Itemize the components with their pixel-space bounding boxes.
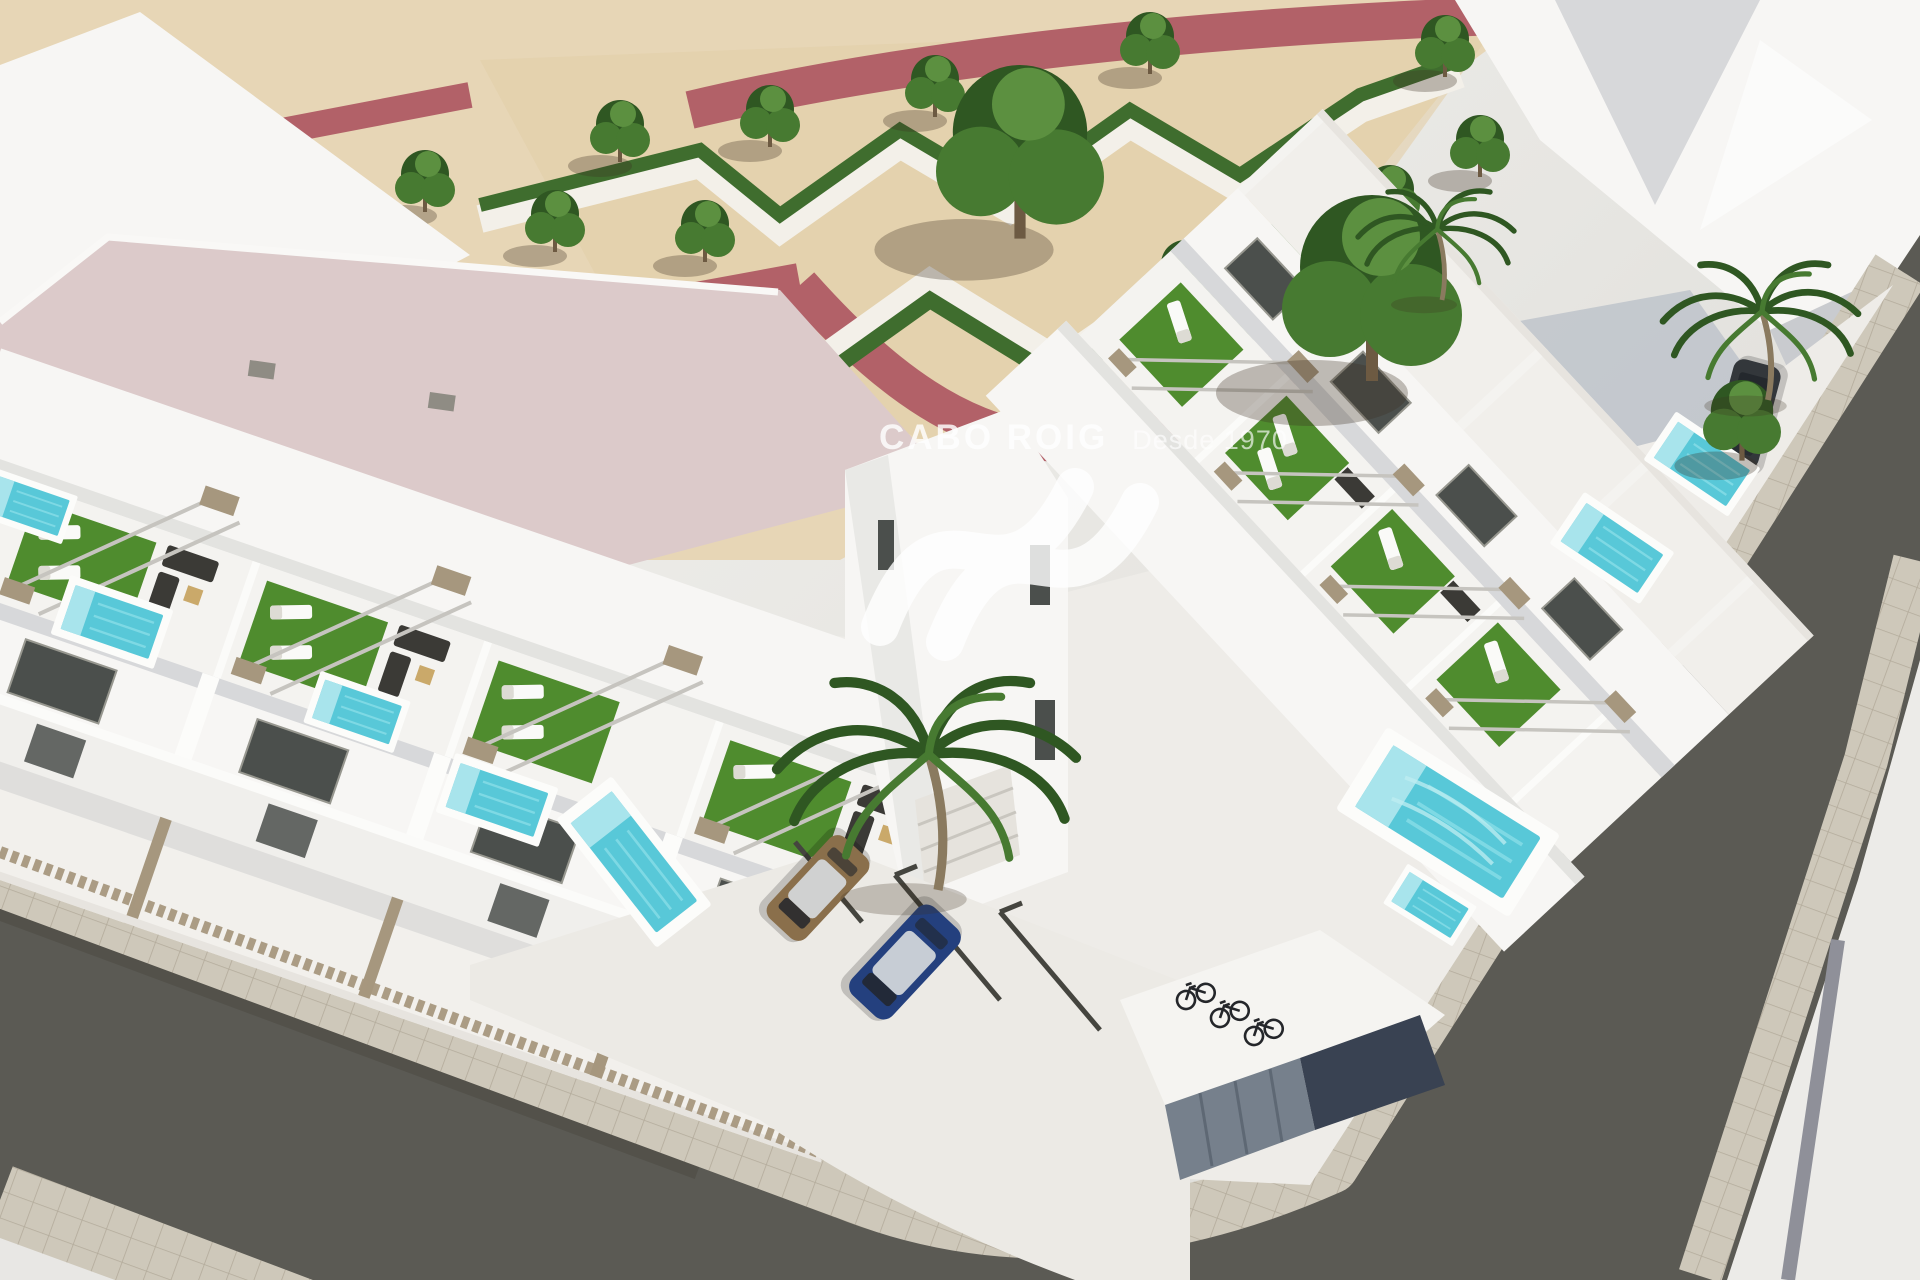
sun-lounger bbox=[270, 605, 312, 620]
scene-canvas bbox=[0, 0, 1920, 1280]
render-scene: CABO ROIG Desde 1970 bbox=[0, 0, 1920, 1280]
sun-lounger bbox=[502, 685, 544, 700]
sun-lounger bbox=[733, 764, 775, 779]
park-tree bbox=[1428, 115, 1510, 192]
